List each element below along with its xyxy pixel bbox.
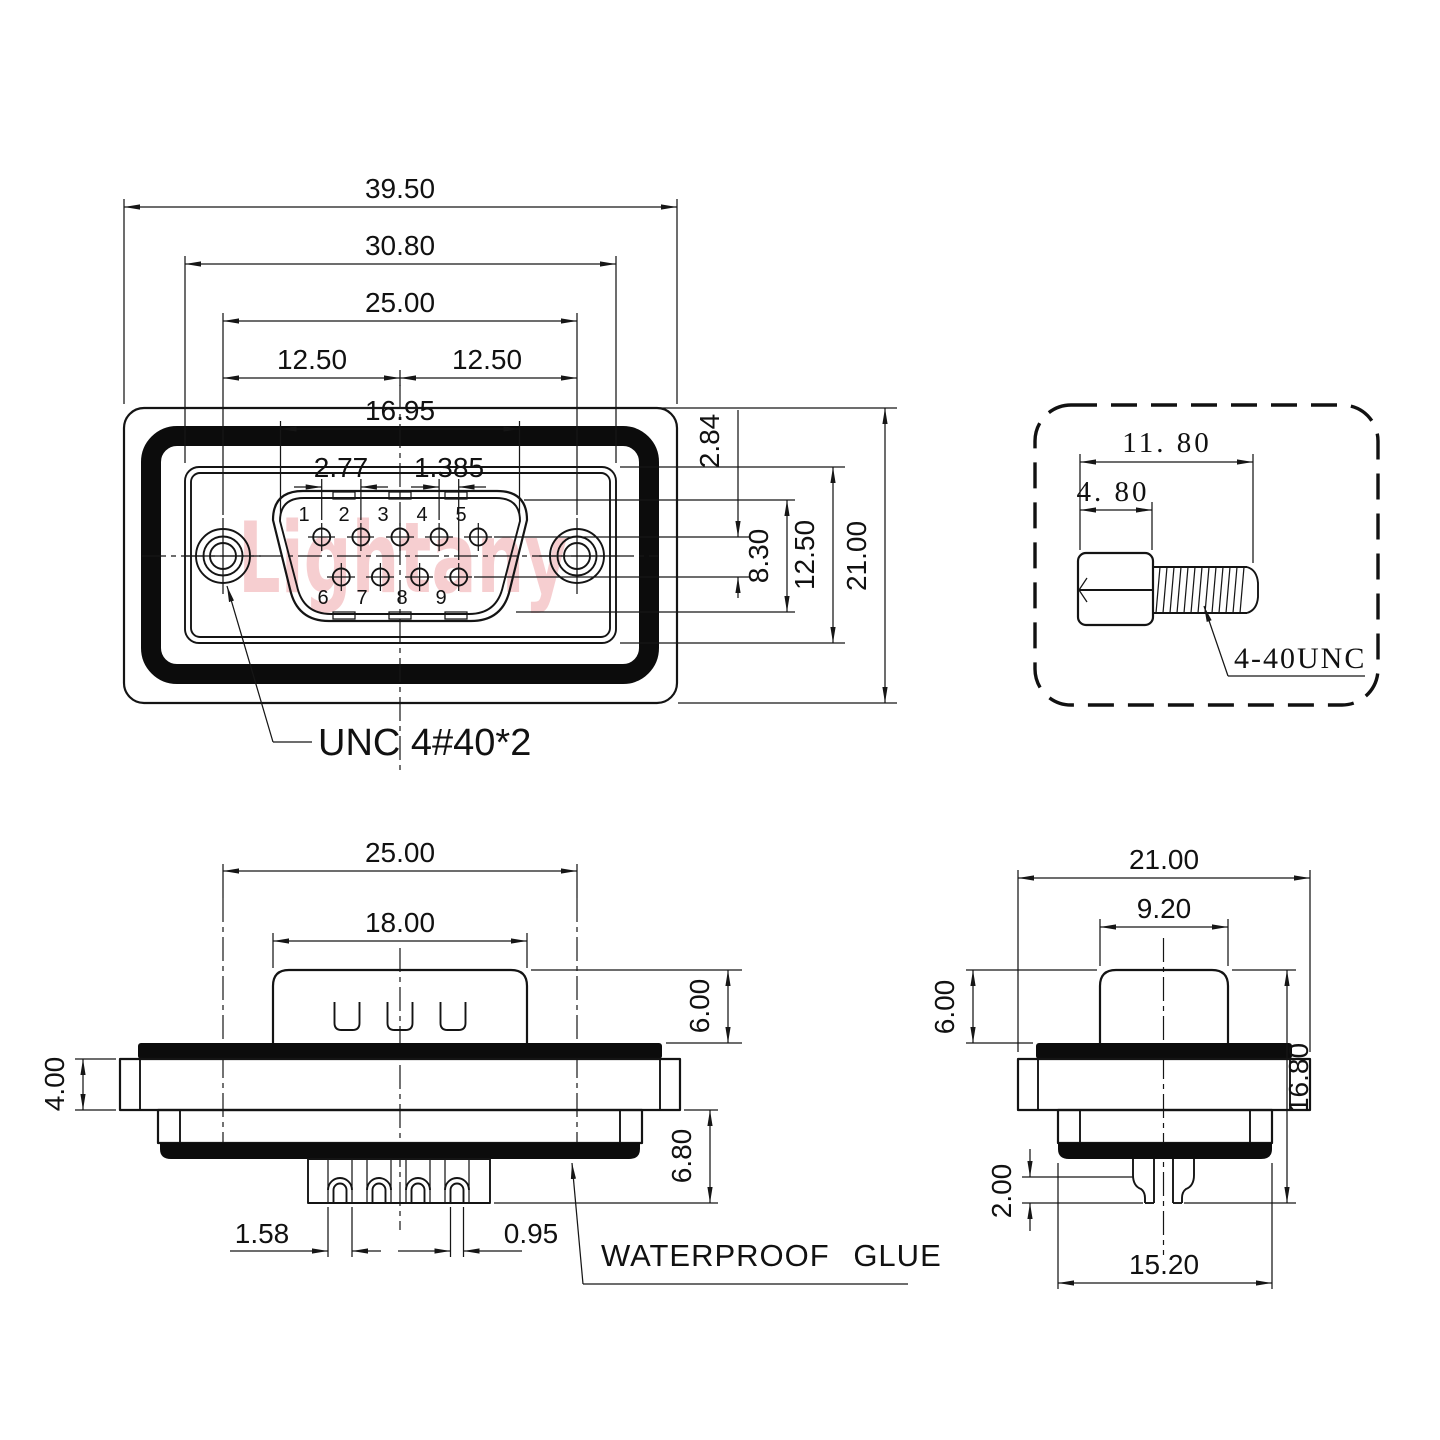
drawing-sheet: Lightany: [0, 0, 1440, 1440]
side-glue-bar-bottom: [160, 1143, 640, 1159]
pin-label-3: 3: [377, 504, 388, 526]
profile-section-view: 21.00 9.20 6.00 2.00: [929, 844, 1314, 1289]
dim-profile-pin-step: 2.00: [986, 1164, 1017, 1219]
pin-label-6: 6: [317, 587, 328, 609]
dim-profile-shell-width: 9.20: [1137, 893, 1192, 924]
dim-front-shell-height: 8.30: [743, 529, 774, 584]
screw-detail-view: 11. 80 4. 80: [1035, 405, 1378, 705]
dim-front-total-width: 39.50: [365, 173, 435, 204]
glue-note: WATERPROOF GLUE: [572, 1163, 942, 1284]
pin-label-2: 2: [338, 504, 349, 526]
dim-front-shell-width: 16.95: [365, 395, 435, 426]
side-glue-bar-top: [138, 1043, 662, 1059]
solder-cups: [328, 1178, 469, 1203]
pin-label-7: 7: [356, 587, 367, 609]
note-unc-thread: UNC 4#40*2: [318, 722, 531, 764]
pin-label-4: 4: [416, 504, 427, 526]
dim-side-hole-span: 25.00: [365, 837, 435, 868]
dim-front-total-height: 21.00: [841, 521, 872, 591]
dim-front-hole-span: 25.00: [365, 287, 435, 318]
dim-profile-shell-height: 6.00: [929, 980, 960, 1035]
screw-thread: [1153, 567, 1258, 613]
cad-drawing: Lightany: [0, 0, 1440, 1440]
note-screw-thread-spec: 4-40UNC: [1234, 642, 1366, 675]
dim-front-inner-height: 12.50: [789, 520, 820, 590]
pin-label-8: 8: [396, 587, 407, 609]
dim-screw-head-length: 4. 80: [1077, 476, 1150, 508]
dim-side-shell-width: 18.00: [365, 907, 435, 938]
profile-glue-bar-top: [1036, 1043, 1292, 1059]
dim-front-pin-pitch: 2.77: [314, 452, 369, 483]
screw-head: [1078, 553, 1153, 625]
dim-front-half-left: 12.50: [277, 344, 347, 375]
dim-front-half-right: 12.50: [452, 344, 522, 375]
screw-thread-note: 4-40UNC: [1204, 606, 1366, 676]
dim-front-row-gap: 2.84: [694, 414, 725, 469]
dim-front-inner-width: 30.80: [365, 230, 435, 261]
dim-front-row-offset: 1.385: [414, 452, 484, 483]
profile-lower-body: [1058, 1110, 1272, 1143]
profile-glue-bar-bottom: [1058, 1143, 1272, 1159]
pin-label-5: 5: [455, 504, 466, 526]
dim-profile-total-height: 16.80: [1283, 1043, 1314, 1113]
dim-side-shell-height: 6.00: [684, 979, 715, 1034]
dim-profile-flange-width: 21.00: [1129, 844, 1199, 875]
dim-screw-total-length: 11. 80: [1122, 427, 1211, 459]
front-view: Lightany: [124, 173, 897, 775]
dim-side-pin-outer: 1.58: [235, 1218, 290, 1249]
thread-hatching: [1156, 567, 1244, 613]
dim-profile-body-width: 15.20: [1129, 1249, 1199, 1280]
side-section-view: 25.00 18.00: [39, 837, 942, 1284]
dim-side-lower-height: 6.80: [666, 1129, 697, 1184]
side-pin-block: [308, 1159, 490, 1203]
dim-side-pin-inner: 0.95: [504, 1218, 559, 1249]
pin-label-1: 1: [298, 504, 309, 526]
note-waterproof-glue: WATERPROOF GLUE: [601, 1238, 942, 1273]
pin-label-9: 9: [435, 587, 446, 609]
dim-side-flange-height: 4.00: [39, 1057, 70, 1112]
